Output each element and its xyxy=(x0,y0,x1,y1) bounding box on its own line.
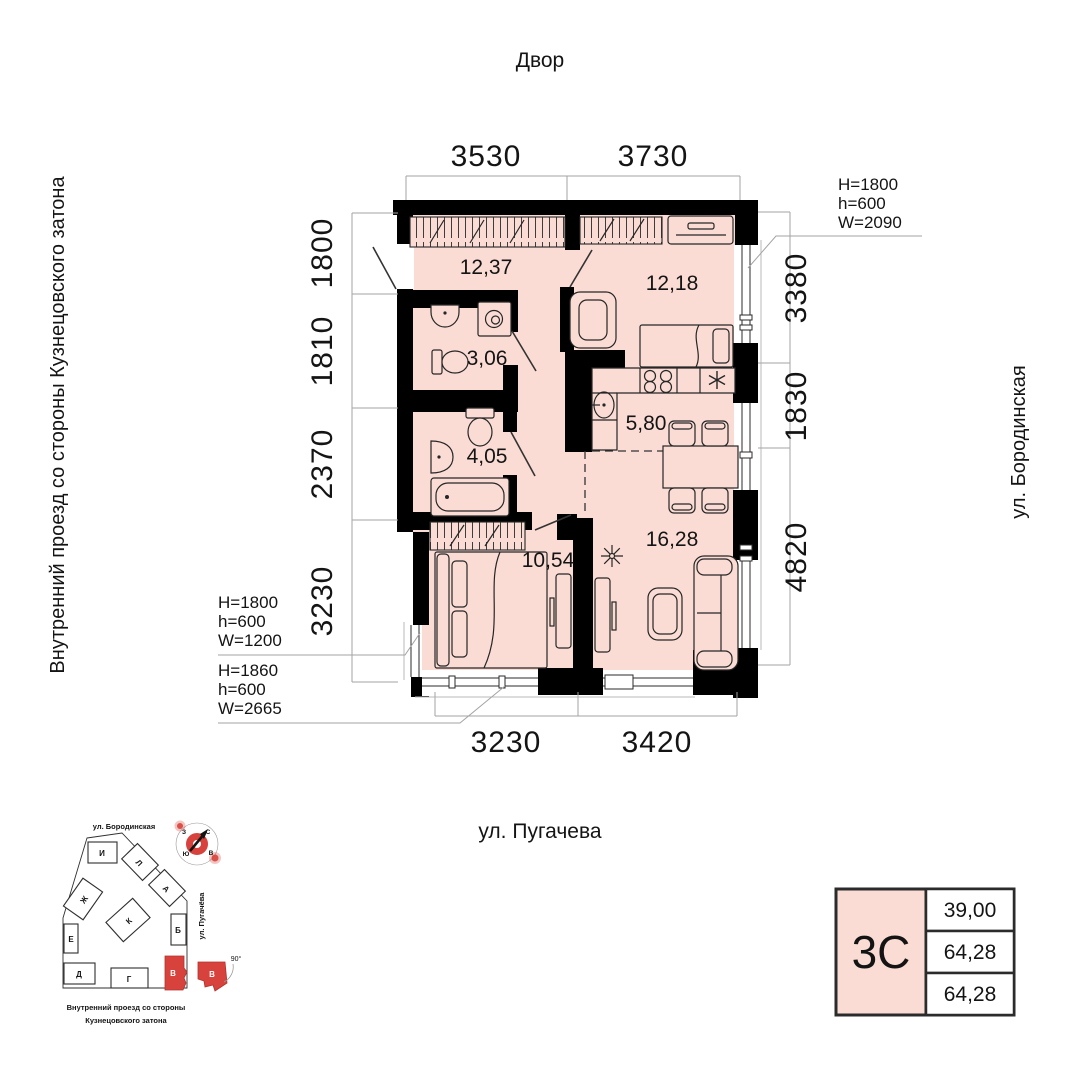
wardrobe-hallway xyxy=(410,217,565,247)
dim-left-3: 2370 xyxy=(306,429,339,500)
room-label-bedroom-2: 12,18 xyxy=(646,272,699,295)
entry-door-leaf xyxy=(373,247,396,289)
minimap-building-I: И xyxy=(88,842,117,863)
toilet-icon xyxy=(432,350,468,374)
dim-top: 3530 3730 xyxy=(406,140,740,200)
ann-left-line2: h=600 xyxy=(218,612,266,631)
svg-text:Б: Б xyxy=(175,926,181,935)
svg-text:В: В xyxy=(209,970,215,979)
room-label-bathroom-small: 3,06 xyxy=(467,347,508,370)
room-label-bathroom-large: 4,05 xyxy=(467,445,508,468)
angle-label: 90° xyxy=(231,955,242,963)
minimap-building-L: Л xyxy=(122,844,159,881)
room-label-living: 16,28 xyxy=(646,528,699,551)
minimap-building-D: Д xyxy=(64,963,95,984)
window-bedroom-1-bottom xyxy=(422,670,538,696)
minimap-building-E: Е xyxy=(64,924,78,953)
svg-text:И: И xyxy=(99,849,105,858)
ann-right-line3: W=2090 xyxy=(838,213,902,232)
minimap-building-A: А xyxy=(149,870,186,907)
minimap-building-V-highlighted: В xyxy=(165,956,187,990)
dim-right: 3380 1830 4820 xyxy=(758,212,813,665)
minimap-street-bottom-2: Кузнецовского затона xyxy=(85,1016,167,1025)
minimap-building-K: К xyxy=(106,898,150,941)
minimap-street-bottom-1: Внутренний проезд со стороны xyxy=(67,1003,186,1012)
ann-left-line1: H=1800 xyxy=(218,593,278,612)
minimap-building-Zh: Ж xyxy=(63,878,102,920)
card-type-label: 3С xyxy=(852,926,911,978)
ann-right-line2: h=600 xyxy=(838,194,886,213)
dresser xyxy=(668,216,733,244)
bathtub-icon xyxy=(431,478,509,516)
floor-plan: 12,37 12,18 3,06 4,05 5,80 10,54 16,28 xyxy=(373,200,761,698)
ann-right-line1: H=1800 xyxy=(838,175,898,194)
bed-single xyxy=(640,325,733,367)
dim-bottom-2: 3420 xyxy=(622,726,693,759)
armchair xyxy=(570,292,616,348)
room-label-kitchen: 5,80 xyxy=(626,412,667,435)
dining-chair xyxy=(669,421,695,446)
card-value-1: 39,00 xyxy=(944,899,997,922)
compass-east: В xyxy=(209,850,214,857)
card-value-2: 64,28 xyxy=(944,941,997,964)
svg-text:Г: Г xyxy=(127,975,132,984)
room-label-bedroom-1: 10,54 xyxy=(522,549,575,572)
dim-bottom: 3230 3420 xyxy=(435,692,737,759)
balcony-door-bottom xyxy=(603,670,693,696)
svg-text:Д: Д xyxy=(76,970,82,979)
dim-right-3: 4820 xyxy=(780,522,813,593)
floorplan-canvas: Двор ул. Пугачева Внутренний проезд со с… xyxy=(0,0,1080,1080)
compass-south: Ю xyxy=(183,851,190,858)
dim-top-2: 3730 xyxy=(618,140,689,173)
dining-chair xyxy=(702,421,728,446)
dim-bottom-1: 3230 xyxy=(471,726,542,759)
toilet-icon xyxy=(466,408,494,446)
washing-machine-icon xyxy=(478,302,511,336)
window-bedroom-2-right xyxy=(734,245,758,343)
compass-north: С xyxy=(206,829,211,836)
minimap-building-V2-highlighted: В xyxy=(198,962,227,991)
dim-right-1: 3380 xyxy=(780,253,813,324)
svg-text:В: В xyxy=(170,969,176,978)
plant-icon xyxy=(601,545,623,567)
wardrobe-bedroom-1 xyxy=(430,522,525,550)
compass-west: З xyxy=(182,829,186,836)
wardrobe-bedroom-2 xyxy=(580,217,662,244)
label-street-bottom: ул. Пугачева xyxy=(478,820,602,843)
label-street-left: Внутренний проезд со стороны Кузнецовско… xyxy=(47,176,69,674)
entry-opening xyxy=(395,244,414,289)
apartment-card: 3С 39,00 64,28 64,28 xyxy=(836,889,1014,1015)
dim-left-4: 3230 xyxy=(306,566,339,637)
site-minimap: ул. Бородинская ул. Пугачёва Внутренний … xyxy=(63,821,241,1026)
ann-left-line3: W=1200 xyxy=(218,631,282,650)
dim-left-2: 1810 xyxy=(306,316,339,387)
minimap-building-G: Г xyxy=(111,968,148,988)
minimap-street-right: ул. Пугачёва xyxy=(197,892,206,940)
dining-chair xyxy=(669,488,695,513)
label-street-right: ул. Бородинская xyxy=(1008,365,1030,518)
dim-left: 1800 1810 2370 3230 xyxy=(306,213,398,682)
label-yard: Двор xyxy=(516,49,565,72)
dim-right-2: 1830 xyxy=(780,371,813,442)
minimap-street-top: ул. Бородинская xyxy=(93,822,155,831)
floorplan-page: Двор ул. Пугачева Внутренний проезд со с… xyxy=(0,0,1080,1080)
ann-bottom-line1: H=1860 xyxy=(218,661,278,680)
compass: С З Ю В xyxy=(175,821,222,866)
card-value-3: 64,28 xyxy=(944,983,997,1006)
dim-top-1: 3530 xyxy=(451,140,522,173)
window-annotation-right: H=1800 h=600 W=2090 xyxy=(748,175,922,268)
dining-chair xyxy=(702,488,728,513)
ann-bottom-line3: W=2665 xyxy=(218,699,282,718)
minimap-building-B: Б xyxy=(171,914,186,945)
svg-text:Е: Е xyxy=(68,935,74,944)
coffee-table xyxy=(648,588,682,640)
room-label-hallway: 12,37 xyxy=(460,256,513,279)
dim-left-1: 1800 xyxy=(306,218,339,289)
sofa xyxy=(694,556,738,670)
ann-bottom-line2: h=600 xyxy=(218,680,266,699)
